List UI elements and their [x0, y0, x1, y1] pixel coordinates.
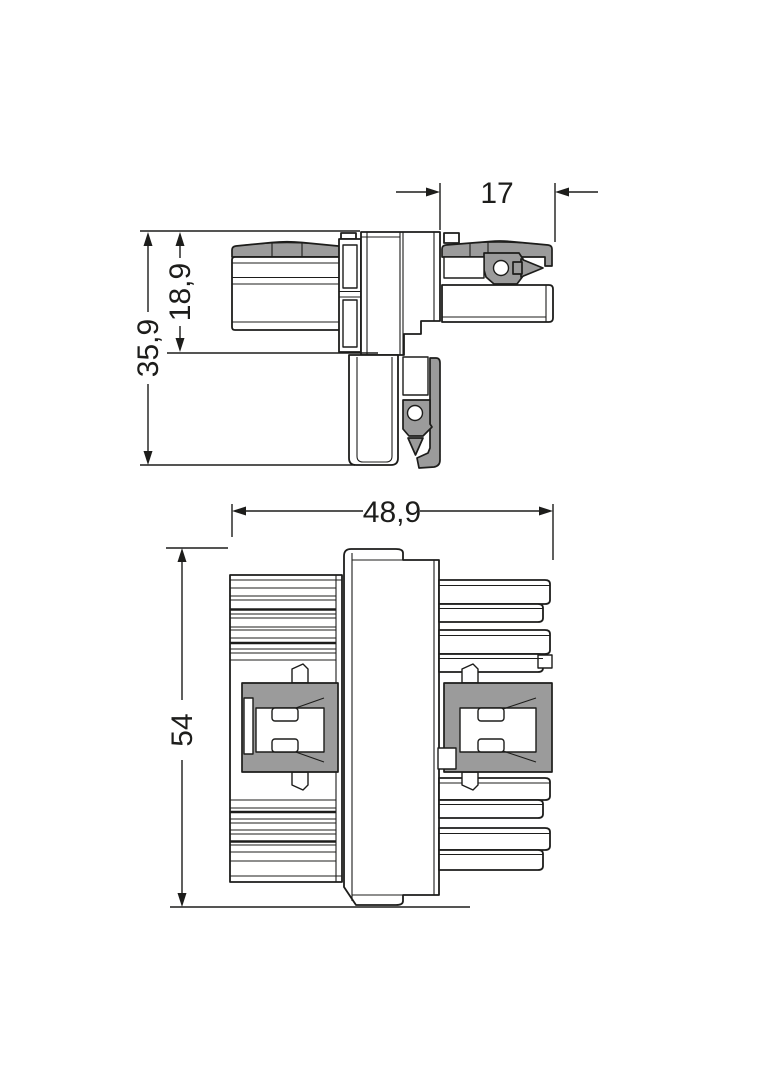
latch-left-sliver	[244, 698, 253, 754]
latch-right	[438, 683, 552, 772]
housing-rail-tab	[444, 233, 459, 243]
connector-dimension-drawing: 17 18,9 35,9	[0, 0, 784, 1066]
pin-b-notch	[538, 655, 552, 668]
latch-right-tab-top	[478, 708, 504, 721]
dim489-label: 48,9	[363, 496, 421, 529]
pin-c1	[439, 778, 550, 800]
pin-b1	[439, 630, 550, 654]
center-body-outline	[344, 549, 439, 905]
dim17-arrow-right	[555, 188, 569, 197]
latch-right-tab-bottom	[478, 739, 504, 752]
pin-d1	[439, 828, 550, 850]
latch-right-corner-notch	[438, 748, 456, 769]
pin-a1	[439, 580, 550, 604]
dim189-label: 18,9	[164, 263, 197, 321]
dim359-label: 35,9	[132, 319, 165, 377]
center-body	[344, 549, 439, 905]
front-view: 48,9 54	[166, 496, 553, 907]
pin-b2	[439, 654, 543, 672]
dim54-label: 54	[166, 713, 199, 746]
socket-plug-left	[232, 242, 342, 330]
leg-bottom	[349, 355, 440, 468]
leg-latch-wedge	[408, 438, 423, 455]
dim359-arrow-top	[144, 232, 153, 246]
plug-body	[232, 257, 342, 330]
leg-latch-pivot-hole	[408, 406, 423, 421]
dim17-arrow-left	[426, 188, 440, 197]
technical-drawing-page: 17 18,9 35,9	[0, 0, 784, 1066]
pin-d2	[439, 850, 543, 870]
dim17-label: 17	[480, 177, 513, 210]
plug-right	[442, 241, 553, 322]
flange-window-top	[343, 245, 357, 288]
dim189-arrow-bottom	[176, 338, 185, 352]
flange-window-bottom	[343, 300, 357, 347]
leg-latch-window	[403, 357, 428, 395]
plug-cap	[232, 242, 342, 257]
latch-wedge	[521, 259, 543, 277]
dim359-arrow-bottom	[144, 451, 153, 465]
latch-left-tab-top	[272, 708, 298, 721]
latch-wedge-tail	[513, 262, 522, 274]
dim54-arrow-top	[178, 548, 187, 562]
dim489-arrow-right	[539, 507, 553, 516]
pin-a2	[439, 604, 543, 622]
pin-c2	[439, 800, 543, 818]
dim489-arrow-left	[232, 507, 246, 516]
dim54-arrow-bottom	[178, 893, 187, 907]
dim189-arrow-top	[176, 232, 185, 246]
latch-left-tab-bottom	[272, 739, 298, 752]
plug-window	[444, 257, 484, 278]
leg-outline	[349, 355, 398, 465]
mounting-flange	[339, 233, 361, 352]
side-view: 17 18,9 35,9	[132, 177, 598, 468]
latch-left	[242, 683, 338, 772]
latch-pivot-hole	[494, 261, 509, 276]
